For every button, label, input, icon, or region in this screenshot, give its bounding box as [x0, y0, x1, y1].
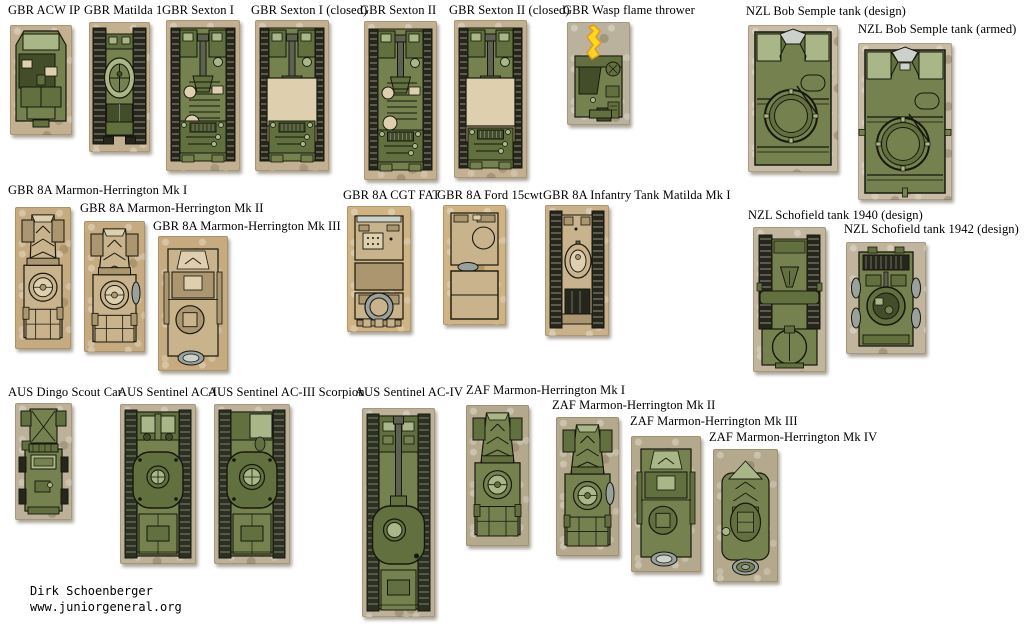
- vehicle-label-gbr-sexton-ii: GBR Sexton II: [360, 3, 436, 17]
- vehicle-label-aus-sentinel-ac1: AUS Sentinel AC-I: [118, 385, 217, 399]
- vehicle-label-zaf-mh-mk2: ZAF Marmon-Herrington Mk II: [552, 398, 715, 412]
- vehicle-sprite-aus-dingo: [15, 403, 72, 520]
- vehicle-label-gbr-mh-mk3: GBR 8A Marmon-Herrington Mk III: [153, 219, 341, 233]
- vehicle-drawing-zaf-mh-mk1: [466, 405, 529, 546]
- vehicle-drawing-aus-dingo: [15, 403, 72, 520]
- vehicle-label-gbr-matilda-1: GBR Matilda 1: [84, 3, 162, 17]
- vehicle-label-gbr-mh-mk2: GBR 8A Marmon-Herrington Mk II: [80, 201, 264, 215]
- vehicle-label-gbr-acw-ip: GBR ACW IP: [8, 3, 80, 17]
- vehicle-sprite-gbr-sexton-i-closed: [255, 20, 329, 171]
- vehicle-label-aus-dingo: AUS Dingo Scout Car: [8, 385, 122, 399]
- vehicle-drawing-gbr-wasp: [567, 22, 630, 125]
- vehicle-drawing-aus-sentinel-ac3: [214, 404, 290, 564]
- vehicle-label-nzl-schofield-1942: NZL Schofield tank 1942 (design): [844, 222, 1019, 236]
- vehicle-drawing-zaf-mh-mk3: [631, 436, 701, 572]
- vehicle-drawing-gbr-mh-mk2: [84, 221, 145, 352]
- vehicle-drawing-nzl-schofield-1942: [846, 242, 926, 354]
- vehicle-label-gbr-wasp: GBR Wasp flame thrower: [563, 3, 695, 17]
- vehicle-sprite-gbr-matilda-1: [89, 22, 150, 152]
- vehicle-sheet: Dirk Schoenberger www.juniorgeneral.org …: [0, 0, 1024, 626]
- vehicle-sprite-gbr-sexton-ii-closed: [454, 20, 527, 178]
- vehicle-label-zaf-mh-mk1: ZAF Marmon-Herrington Mk I: [466, 383, 625, 397]
- vehicle-drawing-aus-sentinel-ac4: [362, 408, 435, 617]
- vehicle-sprite-gbr-mh-mk2: [84, 221, 145, 352]
- vehicle-drawing-gbr-sexton-ii: [364, 21, 437, 180]
- vehicle-sprite-aus-sentinel-ac3: [214, 404, 290, 564]
- vehicle-drawing-zaf-mh-mk4: [713, 449, 778, 582]
- vehicle-sprite-nzl-schofield-1942: [846, 242, 926, 354]
- vehicle-drawing-gbr-matilda-1: [89, 22, 150, 152]
- credit-website: www.juniorgeneral.org: [30, 599, 182, 615]
- vehicle-drawing-nzl-bob-semple-armed: [858, 43, 952, 200]
- vehicle-sprite-gbr-sexton-i: [166, 20, 240, 171]
- vehicle-drawing-nzl-bob-semple-design: [748, 25, 838, 172]
- vehicle-sprite-zaf-mh-mk2: [556, 417, 619, 556]
- vehicle-label-gbr-sexton-i: GBR Sexton I: [162, 3, 234, 17]
- credit-block: Dirk Schoenberger www.juniorgeneral.org: [30, 583, 182, 615]
- vehicle-drawing-gbr-sexton-ii-closed: [454, 20, 527, 178]
- vehicle-sprite-zaf-mh-mk3: [631, 436, 701, 572]
- vehicle-sprite-nzl-bob-semple-design: [748, 25, 838, 172]
- vehicle-drawing-gbr-acw-ip: [10, 25, 72, 135]
- vehicle-drawing-nzl-schofield-1940: [753, 227, 826, 372]
- vehicle-sprite-gbr-mh-mk3: [158, 236, 228, 371]
- vehicle-label-nzl-bob-semple-armed: NZL Bob Semple tank (armed): [858, 22, 1016, 36]
- vehicle-label-zaf-mh-mk4: ZAF Marmon-Herrington Mk IV: [709, 430, 877, 444]
- vehicle-sprite-gbr-cgt-fat: [347, 206, 411, 332]
- vehicle-label-nzl-schofield-1940: NZL Schofield tank 1940 (design): [748, 208, 923, 222]
- vehicle-drawing-gbr-mh-mk3: [158, 236, 228, 371]
- vehicle-drawing-gbr-matilda-mki: [545, 205, 609, 336]
- vehicle-sprite-gbr-mh-mk1: [15, 207, 71, 349]
- vehicle-label-gbr-sexton-ii-closed: GBR Sexton II (closed): [449, 3, 570, 17]
- vehicle-label-gbr-matilda-mki: GBR 8A Infantry Tank Matilda Mk I: [543, 188, 731, 202]
- vehicle-sprite-zaf-mh-mk1: [466, 405, 529, 546]
- vehicle-sprite-aus-sentinel-ac4: [362, 408, 435, 617]
- vehicle-sprite-gbr-acw-ip: [10, 25, 72, 135]
- vehicle-label-gbr-cgt-fat: GBR 8A CGT FAT: [343, 188, 440, 202]
- vehicle-label-gbr-mh-mk1: GBR 8A Marmon-Herrington Mk I: [8, 183, 187, 197]
- vehicle-drawing-zaf-mh-mk2: [556, 417, 619, 556]
- vehicle-label-aus-sentinel-ac3: AUS Sentinel AC-III Scorpion: [208, 385, 365, 399]
- vehicle-label-nzl-bob-semple-design: NZL Bob Semple tank (design): [746, 4, 906, 18]
- vehicle-sprite-nzl-schofield-1940: [753, 227, 826, 372]
- vehicle-label-gbr-sexton-i-closed: GBR Sexton I (closed): [251, 3, 367, 17]
- vehicle-sprite-aus-sentinel-ac1: [120, 404, 196, 564]
- vehicle-drawing-gbr-mh-mk1: [15, 207, 71, 349]
- vehicle-drawing-gbr-cgt-fat: [347, 206, 411, 332]
- vehicle-label-gbr-ford-15cwt: GBR 8A Ford 15cwt: [437, 188, 543, 202]
- vehicle-sprite-nzl-bob-semple-armed: [858, 43, 952, 200]
- vehicle-sprite-gbr-sexton-ii: [364, 21, 437, 180]
- vehicle-label-aus-sentinel-ac4: AUS Sentinel AC-IV: [355, 385, 463, 399]
- vehicle-drawing-gbr-sexton-i-closed: [255, 20, 329, 171]
- vehicle-drawing-gbr-ford-15cwt: [443, 205, 506, 325]
- vehicle-sprite-gbr-matilda-mki: [545, 205, 609, 336]
- vehicle-sprite-gbr-ford-15cwt: [443, 205, 506, 325]
- vehicle-drawing-gbr-sexton-i: [166, 20, 240, 171]
- vehicle-sprite-zaf-mh-mk4: [713, 449, 778, 582]
- vehicle-label-zaf-mh-mk3: ZAF Marmon-Herrington Mk III: [630, 414, 798, 428]
- vehicle-drawing-aus-sentinel-ac1: [120, 404, 196, 564]
- vehicle-sprite-gbr-wasp: [567, 22, 630, 125]
- credit-author: Dirk Schoenberger: [30, 583, 182, 599]
